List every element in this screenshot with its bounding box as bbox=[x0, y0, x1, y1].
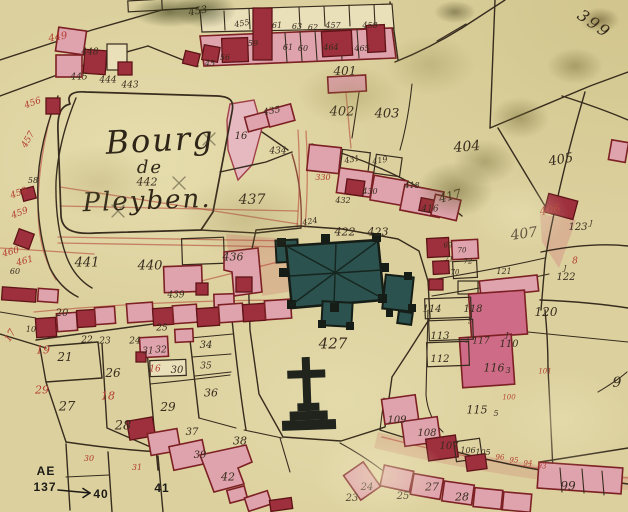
map-label-3: 3 bbox=[505, 367, 510, 375]
map-label-26: 26 bbox=[105, 367, 120, 379]
map-label-431: 431 bbox=[344, 155, 360, 166]
map-label-17: 17 bbox=[3, 328, 18, 344]
map-label-330: 330 bbox=[315, 174, 330, 182]
map-label-441: 441 bbox=[75, 257, 100, 270]
map-label-30: 30 bbox=[84, 455, 94, 463]
map-label-439: 439 bbox=[167, 292, 184, 301]
map-label-3: 3 bbox=[465, 338, 469, 345]
map-label-42: 42 bbox=[221, 472, 235, 483]
map-label-5: 5 bbox=[493, 410, 498, 418]
map-label-62: 62 bbox=[308, 24, 318, 32]
map-label-437: 437 bbox=[239, 193, 266, 207]
map-label-464: 464 bbox=[323, 44, 338, 52]
map-label-403: 403 bbox=[375, 108, 400, 121]
map-labels: Bourgde442Pleyben.3994274374074044034024… bbox=[0, 0, 628, 512]
map-label-443: 443 bbox=[121, 82, 138, 91]
map-label-444: 444 bbox=[99, 77, 116, 86]
parcel-427-churchyard: 427 bbox=[319, 337, 348, 352]
map-label-60: 60 bbox=[298, 45, 308, 53]
map-label-458: 458 bbox=[9, 187, 28, 201]
map-label-59: 59 bbox=[248, 40, 258, 48]
map-label-32: 32 bbox=[155, 347, 166, 356]
map-label-45: 45 bbox=[205, 60, 215, 68]
map-label-114: 114 bbox=[422, 305, 441, 315]
map-label-422: 422 bbox=[335, 227, 356, 238]
map-label-56: 56 bbox=[220, 54, 230, 62]
map-label-61: 61 bbox=[272, 22, 282, 30]
map-label-35: 35 bbox=[200, 363, 211, 372]
map-label-407: 407 bbox=[510, 225, 538, 243]
map-label-70: 70 bbox=[451, 270, 460, 277]
ref-code-ae: AE bbox=[37, 465, 56, 477]
map-label-39: 39 bbox=[194, 451, 207, 461]
map-label-21: 21 bbox=[57, 351, 72, 363]
map-label-23: 23 bbox=[346, 494, 359, 504]
map-label-23: 23 bbox=[99, 338, 110, 347]
map-label-123: 123 bbox=[568, 223, 587, 233]
map-label-116: 116 bbox=[484, 363, 505, 374]
title-bourg: Bourg bbox=[105, 121, 216, 159]
map-label-96: 96 bbox=[496, 455, 505, 462]
map-label-109: 109 bbox=[387, 416, 406, 426]
map-label-16: 16 bbox=[235, 132, 248, 142]
map-label-95: 95 bbox=[510, 458, 519, 465]
map-label-404: 404 bbox=[453, 139, 481, 155]
map-label-424: 424 bbox=[302, 217, 318, 228]
map-label-28: 28 bbox=[455, 492, 469, 503]
map-label-113: 113 bbox=[430, 332, 449, 342]
map-label-106: 106 bbox=[460, 447, 475, 455]
sheet-number: 399 bbox=[574, 7, 613, 41]
map-label-18: 18 bbox=[101, 391, 115, 402]
map-label-406: 406 bbox=[539, 203, 562, 217]
map-label-418: 418 bbox=[404, 182, 419, 190]
map-label-24: 24 bbox=[361, 483, 374, 493]
map-label-36: 36 bbox=[204, 388, 218, 399]
map-label-120: 120 bbox=[535, 306, 558, 318]
title-pleyben: Pleyben. bbox=[82, 186, 212, 216]
map-label-430: 430 bbox=[362, 188, 377, 196]
map-label-122: 122 bbox=[556, 273, 575, 283]
map-label-105: 105 bbox=[475, 449, 490, 457]
map-label-118: 118 bbox=[463, 305, 482, 315]
map-label-72: 72 bbox=[464, 259, 473, 266]
map-label-J: J bbox=[590, 221, 593, 228]
map-label-455: 455 bbox=[234, 19, 250, 30]
map-label-31: 31 bbox=[142, 348, 153, 357]
map-label-94: 94 bbox=[524, 461, 533, 468]
map-label-423: 423 bbox=[368, 227, 389, 238]
map-label-435: 435 bbox=[263, 106, 281, 118]
map-label-41: 41 bbox=[154, 482, 169, 494]
map-label-25: 25 bbox=[397, 492, 410, 502]
map-label-5: 5 bbox=[468, 319, 472, 326]
map-label-28: 28 bbox=[115, 420, 132, 433]
map-label-457: 457 bbox=[325, 22, 340, 30]
map-label-37: 37 bbox=[186, 428, 199, 438]
map-label-401: 401 bbox=[334, 65, 357, 77]
map-label-456: 456 bbox=[23, 97, 42, 111]
map-label-70: 70 bbox=[458, 248, 467, 255]
map-label-448: 448 bbox=[81, 49, 98, 58]
map-label-121: 121 bbox=[496, 268, 511, 276]
map-label-99: 99 bbox=[560, 480, 575, 492]
ref-number-137: 137 bbox=[33, 481, 56, 493]
map-label-117: 117 bbox=[472, 338, 489, 347]
map-label-69: 69 bbox=[444, 243, 453, 250]
map-label-110: 110 bbox=[499, 340, 518, 350]
map-label-101: 101 bbox=[538, 369, 551, 376]
map-label-10: 10 bbox=[26, 326, 36, 334]
map-label-93: 93 bbox=[538, 464, 547, 471]
map-label-115: 115 bbox=[467, 405, 488, 416]
map-label-434: 434 bbox=[269, 148, 286, 157]
map-label-22: 22 bbox=[81, 337, 92, 346]
map-label-100: 100 bbox=[502, 395, 515, 402]
map-label-449: 449 bbox=[48, 31, 69, 44]
map-label-60: 60 bbox=[10, 268, 20, 276]
map-label-432: 432 bbox=[335, 197, 350, 205]
map-label-16: 16 bbox=[149, 366, 160, 375]
map-label-107: 107 bbox=[439, 442, 458, 452]
map-label-108: 108 bbox=[417, 429, 436, 439]
map-label-29: 29 bbox=[160, 401, 175, 413]
map-label-445: 445 bbox=[70, 74, 87, 83]
title-de: de bbox=[137, 159, 163, 177]
map-label-436: 436 bbox=[223, 252, 244, 263]
map-label-440: 440 bbox=[138, 260, 163, 273]
map-label-63: 63 bbox=[292, 23, 302, 31]
map-label-416: 416 bbox=[421, 206, 438, 215]
map-label-453: 453 bbox=[188, 5, 209, 18]
map-label-8: 8 bbox=[572, 258, 578, 267]
map-label-34: 34 bbox=[200, 341, 213, 351]
map-label-402: 402 bbox=[330, 106, 355, 119]
map-label-30: 30 bbox=[171, 366, 184, 376]
map-label-61: 61 bbox=[283, 44, 293, 52]
map-label-27: 27 bbox=[59, 401, 76, 414]
map-label-25: 25 bbox=[156, 325, 167, 334]
map-label-9: 9 bbox=[613, 376, 622, 390]
cadastral-map-canvas: Bourgde442Pleyben.3994274374074044034024… bbox=[0, 0, 628, 512]
map-label-458: 458 bbox=[362, 22, 377, 30]
map-label-457: 457 bbox=[21, 130, 37, 149]
map-label-40: 40 bbox=[93, 488, 108, 500]
map-label-24: 24 bbox=[129, 338, 140, 347]
map-label-27: 27 bbox=[425, 482, 439, 493]
map-label-31: 31 bbox=[132, 464, 142, 472]
map-label-465: 465 bbox=[354, 45, 369, 53]
map-label-459: 459 bbox=[10, 207, 29, 221]
map-label-29: 29 bbox=[35, 385, 49, 396]
map-label-20: 20 bbox=[56, 309, 69, 319]
map-label-419: 419 bbox=[372, 156, 388, 167]
map-label-112: 112 bbox=[430, 355, 449, 365]
map-label-417: 417 bbox=[437, 187, 462, 205]
map-label-58: 58 bbox=[28, 177, 38, 185]
map-label-19: 19 bbox=[36, 345, 50, 356]
map-label-405: 405 bbox=[548, 151, 575, 168]
map-label-71: 71 bbox=[445, 257, 454, 264]
map-label-38: 38 bbox=[233, 436, 247, 447]
